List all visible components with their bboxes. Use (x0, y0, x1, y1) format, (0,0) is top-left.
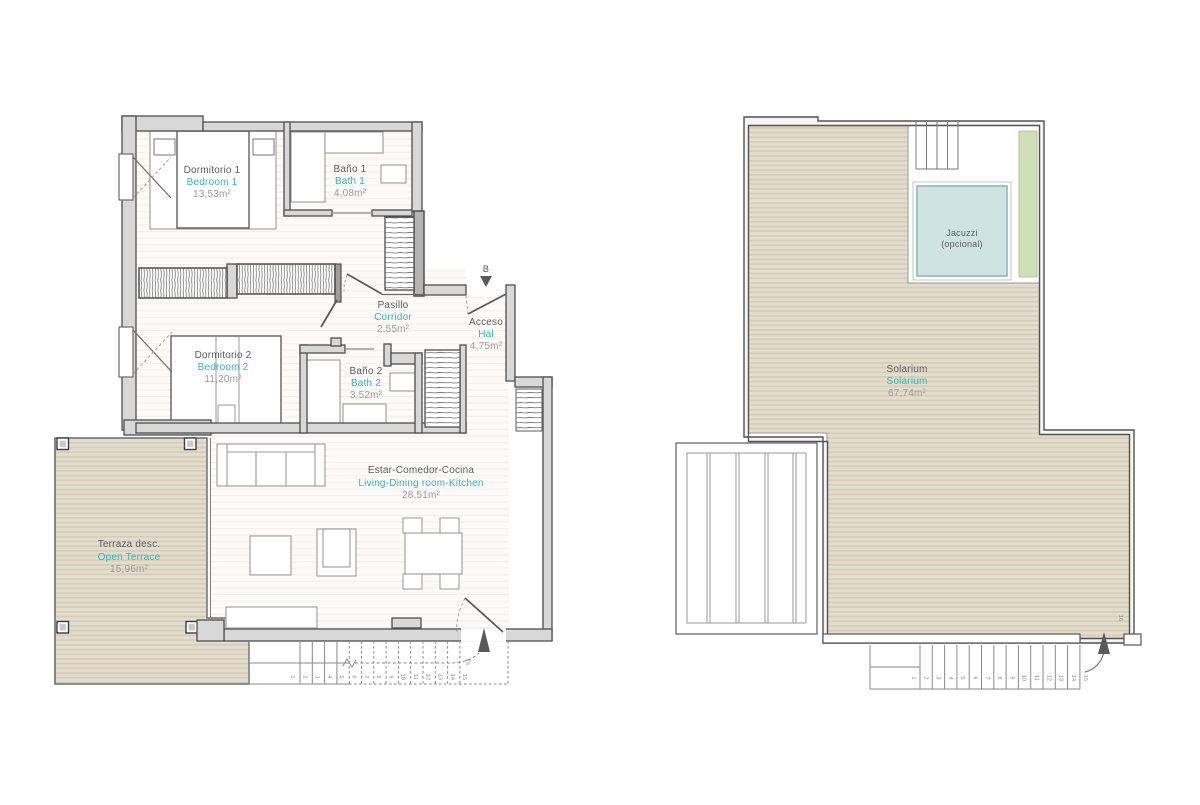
svg-text:1: 1 (289, 675, 295, 678)
svg-text:Bath 1: Bath 1 (335, 176, 365, 187)
svg-text:5: 5 (959, 676, 965, 679)
svg-text:9: 9 (387, 675, 393, 678)
svg-text:6: 6 (351, 675, 357, 678)
svg-text:16: 16 (1117, 615, 1123, 622)
svg-text:2: 2 (922, 676, 928, 679)
svg-text:12: 12 (424, 674, 430, 681)
svg-text:4,75m²: 4,75m² (470, 341, 503, 352)
svg-text:Terraza desc.: Terraza desc. (98, 539, 161, 550)
svg-text:15: 15 (1082, 675, 1088, 682)
svg-text:5: 5 (338, 675, 344, 678)
svg-text:4,08m²: 4,08m² (334, 188, 367, 199)
svg-text:15,96m²: 15,96m² (110, 564, 149, 575)
svg-text:13: 13 (437, 674, 443, 681)
svg-text:3: 3 (935, 676, 941, 679)
svg-text:2,55m²: 2,55m² (377, 324, 410, 335)
svg-text:11,20m²: 11,20m² (204, 374, 242, 385)
svg-text:14: 14 (1070, 675, 1076, 682)
svg-text:15: 15 (461, 674, 467, 681)
svg-text:Living-Dining room-Kitchen: Living-Dining room-Kitchen (358, 478, 483, 489)
svg-text:28,51m²: 28,51m² (402, 490, 441, 501)
svg-text:13,53m²: 13,53m² (193, 189, 232, 200)
svg-text:Acceso: Acceso (469, 317, 503, 328)
svg-text:3,52m²: 3,52m² (350, 390, 383, 401)
svg-text:7: 7 (363, 675, 369, 678)
svg-text:Pasillo: Pasillo (378, 300, 409, 311)
svg-text:Open Terrace: Open Terrace (98, 552, 161, 563)
svg-text:Corridor: Corridor (374, 312, 412, 323)
svg-text:Baño 2: Baño 2 (350, 366, 383, 377)
svg-text:8: 8 (375, 675, 381, 678)
svg-text:12: 12 (1045, 675, 1051, 682)
svg-text:(opcional): (opcional) (941, 239, 983, 249)
svg-text:13: 13 (1058, 675, 1064, 682)
svg-text:Solarium: Solarium (886, 364, 927, 375)
svg-text:8: 8 (996, 676, 1002, 679)
svg-text:B: B (483, 264, 489, 274)
svg-text:Baño 1: Baño 1 (334, 164, 367, 175)
svg-text:Dormitorio 1: Dormitorio 1 (184, 165, 241, 176)
svg-text:Bath 2: Bath 2 (351, 378, 381, 389)
svg-text:2: 2 (301, 675, 307, 678)
svg-text:Dormitorio 2: Dormitorio 2 (195, 350, 252, 361)
svg-text:Hal: Hal (478, 329, 494, 340)
svg-text:10: 10 (1021, 675, 1027, 682)
svg-text:4: 4 (326, 675, 332, 678)
svg-text:67,74m²: 67,74m² (888, 388, 927, 399)
svg-text:11: 11 (1033, 675, 1039, 681)
svg-text:3: 3 (314, 675, 320, 678)
svg-text:Bedroom 1: Bedroom 1 (187, 177, 238, 188)
svg-text:Bedroom 2: Bedroom 2 (198, 362, 249, 373)
svg-text:1: 1 (910, 676, 916, 679)
svg-text:6: 6 (972, 676, 978, 679)
svg-text:9: 9 (1008, 676, 1014, 679)
svg-text:7: 7 (984, 676, 990, 679)
svg-text:Jacuzzi: Jacuzzi (946, 228, 977, 238)
svg-text:11: 11 (412, 674, 418, 680)
svg-text:Estar-Comedor-Cocina: Estar-Comedor-Cocina (368, 465, 474, 476)
svg-text:Solarium: Solarium (886, 376, 927, 387)
svg-text:14: 14 (449, 674, 455, 681)
svg-text:4: 4 (947, 676, 953, 679)
svg-text:10: 10 (400, 674, 406, 681)
